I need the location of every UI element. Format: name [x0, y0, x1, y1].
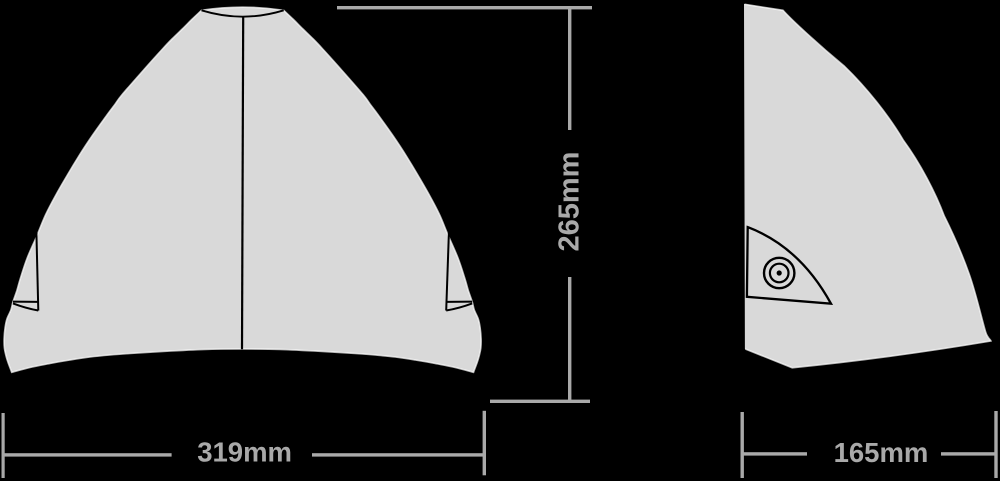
svg-text:319mm: 319mm — [197, 437, 292, 468]
svg-text:265mm: 265mm — [554, 152, 586, 252]
svg-text:165mm: 165mm — [834, 437, 929, 468]
